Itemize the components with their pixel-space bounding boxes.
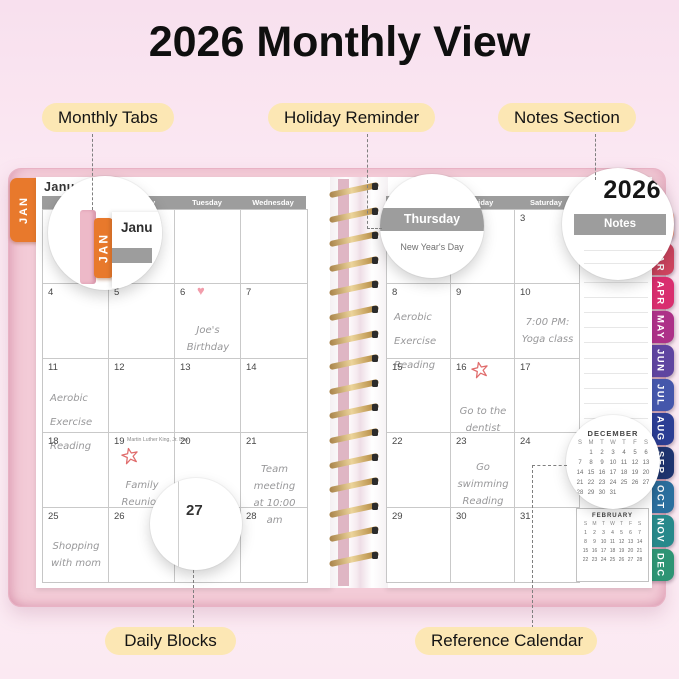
zoom-circle-daily-block: 27 [150, 478, 242, 570]
day-number: 28 [246, 511, 257, 522]
connector-holiday-h [367, 228, 382, 229]
mini-calendar-cell: 24 [608, 480, 619, 490]
zoom-notes-line [584, 263, 662, 264]
day-cell-21: 21Team meetingat 10:00 am [241, 433, 307, 507]
handwritten-entry: Go swimmingReading [454, 445, 512, 510]
zoom-day-number: 27 [186, 502, 203, 519]
mini-calendar-cell: 23 [597, 480, 608, 490]
day-number: 22 [392, 436, 403, 447]
mini-calendar-cell: 21 [575, 480, 586, 490]
mini-calendar-cell: 22 [586, 480, 597, 490]
spiral-hole [372, 355, 378, 362]
spiral-hole [372, 208, 378, 215]
mini-calendar-cell: 28 [575, 490, 586, 500]
day-number: 17 [520, 362, 531, 373]
mini-calendar-cell: S [575, 440, 586, 450]
spiral-hole [372, 454, 378, 461]
mini-calendar-cell: 25 [608, 557, 617, 566]
connector-notes [595, 134, 596, 180]
tab-jan: JAN [10, 178, 38, 242]
spiral-hole [372, 552, 378, 559]
mini-calendar-cell: 31 [608, 490, 619, 500]
mini-calendar-cell: 18 [619, 470, 630, 480]
mini-calendar-cell: 11 [608, 539, 617, 548]
zoom-circle-holiday: Thursday New Year's Day [380, 174, 484, 278]
day-cell-30: 30 [451, 508, 515, 582]
entry-line: Yoga class [518, 331, 577, 348]
day-cell-5: 5 [109, 284, 175, 358]
mini-calendar-cell: 17 [599, 548, 608, 557]
day-cell-11: 11Aerobic ExerciseReading [43, 359, 109, 433]
mini-calendar-cell [641, 490, 652, 500]
day-cell-15: 15 [387, 359, 451, 433]
spiral-hole [372, 281, 378, 288]
mini-calendar-cell: 5 [617, 530, 626, 539]
notes-line [584, 373, 648, 374]
year-label: 2026 [603, 176, 661, 205]
day-cell-6: 6♥Joe's Birthday [175, 284, 241, 358]
notes-line [584, 327, 648, 328]
mini-calendar-cell: 19 [617, 548, 626, 557]
mini-calendar-cell: 30 [597, 490, 608, 500]
day-cell-29: 29 [387, 508, 451, 582]
day-number: 15 [392, 362, 403, 373]
day-number: 26 [114, 511, 125, 522]
page-title: 2026 Monthly View [0, 18, 679, 67]
entry-line: 7:00 PM: [518, 314, 577, 331]
day-cell-10: 107:00 PM:Yoga class [515, 284, 579, 358]
zoom-month-snippet: Janu [121, 220, 153, 235]
day-cell-9: 9 [451, 284, 515, 358]
mini-calendar-headers: SMTWTFS [574, 440, 652, 450]
spiral-hole [372, 503, 378, 510]
mini-calendar-cell: 8 [581, 539, 590, 548]
connector-reference-v [532, 465, 533, 628]
entry-line: Joe's Birthday [178, 322, 238, 356]
mini-calendar-cell: W [608, 521, 617, 530]
mini-calendar-cell: 20 [641, 470, 652, 480]
mini-calendar-cell: 8 [586, 460, 597, 470]
mini-calendar-cell: 23 [590, 557, 599, 566]
notes-line [584, 342, 648, 343]
entry-line: Go swimming [454, 459, 512, 493]
connector-monthly-tabs [92, 134, 93, 210]
mini-calendar-cell: 12 [630, 460, 641, 470]
mini-calendar-cell: 10 [608, 460, 619, 470]
mini-calendar-cell: 26 [617, 557, 626, 566]
spiral-hole [372, 306, 378, 313]
entry-line: Aerobic Exercise [50, 387, 106, 435]
callout-holiday-reminder: Holiday Reminder [268, 103, 435, 132]
notes-line [584, 312, 648, 313]
callout-notes-section: Notes Section [498, 103, 636, 132]
mini-calendar-cell: 13 [626, 539, 635, 548]
day-number: 13 [180, 362, 191, 373]
day-cell [175, 210, 241, 284]
day-cell-13: 13 [175, 359, 241, 433]
mini-calendar-cell: 9 [590, 539, 599, 548]
mini-calendar-cell: 15 [581, 548, 590, 557]
handwritten-entry: 7:00 PM:Yoga class [518, 296, 577, 348]
mini-calendar-cell: 10 [599, 539, 608, 548]
reference-calendar-february: FEBRUARYSMTWTFS1234567891011121314151617… [576, 508, 649, 582]
zoom-circle-reference-calendar: DECEMBERSMTWTFS1234567891011121314151617… [566, 415, 660, 509]
mini-calendar-cell: M [586, 440, 597, 450]
callout-daily-blocks: Daily Blocks [105, 627, 236, 655]
mini-calendar-cell: 16 [597, 470, 608, 480]
mini-calendar-cell: 18 [608, 548, 617, 557]
zoom-jan-tab: JAN [94, 218, 113, 278]
mini-calendar-cell: S [641, 440, 652, 450]
spiral-hole [372, 232, 378, 239]
mini-calendar-cell: 19 [630, 470, 641, 480]
connector-reference-h [532, 465, 567, 466]
spiral-hole [372, 404, 378, 411]
entry-line: Shopping [46, 538, 106, 555]
mini-calendar-cell: 14 [635, 539, 644, 548]
callout-monthly-tabs: Monthly Tabs [42, 103, 174, 132]
handwritten-entry: Go to thedentist [454, 371, 512, 437]
day-number: 29 [392, 511, 403, 522]
notes-line [584, 297, 648, 298]
day-cell-12: 12 [109, 359, 175, 433]
mini-calendar-cell: 2 [597, 450, 608, 460]
day-cell-25: 25Shoppingwith mom [43, 508, 109, 582]
zoom-notes-header: Notes [574, 214, 666, 235]
planner-infographic: 2026 Monthly View Monthly Tabs Holiday R… [0, 0, 679, 679]
zoom-holiday-text: New Year's Day [380, 242, 484, 252]
mini-calendar-cell: T [597, 440, 608, 450]
day-cell-7: 7 [241, 284, 307, 358]
day-cell-16: 16Go to thedentist [451, 359, 515, 433]
mini-calendar-cell: 29 [586, 490, 597, 500]
mini-calendar-cell: 3 [608, 450, 619, 460]
mini-calendar-cell: 6 [626, 530, 635, 539]
mini-calendar-cell: 20 [626, 548, 635, 557]
mini-calendar-cell: 6 [641, 450, 652, 460]
connector-daily-blocks [193, 570, 194, 628]
day-number: 31 [520, 511, 531, 522]
mini-calendar-cell [575, 450, 586, 460]
mini-calendar-cell: T [619, 440, 630, 450]
mini-calendar-title: FEBRUARY [577, 509, 648, 521]
mini-calendar-cell: 4 [608, 530, 617, 539]
day-number: 3 [520, 213, 525, 224]
day-number: 14 [246, 362, 257, 373]
day-number: 12 [114, 362, 125, 373]
mini-calendar-cell: 27 [626, 557, 635, 566]
mini-calendar-headers: SMTWTFS [577, 521, 648, 530]
notes-line [584, 282, 648, 283]
entry-line: Aerobic Exercise [394, 306, 448, 354]
entry-line: Team meeting [244, 461, 305, 495]
mini-calendar-cell: T [599, 521, 608, 530]
notes-line [584, 403, 648, 404]
mini-calendar-cell: 9 [597, 460, 608, 470]
mini-calendar-cell: F [630, 440, 641, 450]
day-cell-31: 31 [515, 508, 579, 582]
day-cell-28: 28 [241, 508, 307, 582]
mini-calendar-cell: 26 [630, 480, 641, 490]
day-cell-14: 14 [241, 359, 307, 433]
day-number: 24 [520, 436, 531, 447]
zoom-page-corner: Janu [112, 212, 162, 288]
mini-calendar-cell: F [626, 521, 635, 530]
mini-calendar-cell: 7 [575, 460, 586, 470]
day-cell-23: 23Go swimmingReading [451, 433, 515, 507]
day-cell-4: 4 [43, 284, 109, 358]
mini-calendar-cell: 16 [590, 548, 599, 557]
day-cell-18: 18 [43, 433, 109, 507]
mini-calendar-cell: S [581, 521, 590, 530]
mini-calendar-cell [619, 490, 630, 500]
mini-calendar-cell: 7 [635, 530, 644, 539]
callout-reference-calendar: Reference Calendar [415, 627, 597, 655]
mini-calendar-cell: 25 [619, 480, 630, 490]
mini-calendar-cell: 1 [581, 530, 590, 539]
zoom-jan-tab-label: JAN [94, 218, 113, 278]
spiral-hole [372, 478, 378, 485]
mini-calendar-cell: S [635, 521, 644, 530]
mini-calendar-cell: 2 [590, 530, 599, 539]
day-number: 30 [456, 511, 467, 522]
day-cell-8: 8Aerobic ExerciseReading [387, 284, 451, 358]
mini-calendar-cell: 24 [599, 557, 608, 566]
entry-line: with mom [46, 555, 106, 572]
spiral-hole [372, 183, 378, 190]
mini-calendar-cell: 22 [581, 557, 590, 566]
mini-calendar-cell: W [608, 440, 619, 450]
mini-calendar-cell: 5 [630, 450, 641, 460]
spiral-hole [372, 380, 378, 387]
tab-jan-label: JAN [10, 178, 38, 242]
day-number: 4 [48, 287, 53, 298]
spiral-hole [372, 257, 378, 264]
mini-calendar-cell: 15 [586, 470, 597, 480]
day-number: 7 [246, 287, 251, 298]
mini-calendar-cell: 21 [635, 548, 644, 557]
mini-calendar-cell: M [590, 521, 599, 530]
mini-calendar-title: DECEMBER [574, 425, 652, 440]
weekday-tuesday: Tuesday [174, 196, 240, 209]
mini-calendar-cell: 13 [641, 460, 652, 470]
mini-calendar-cell: T [617, 521, 626, 530]
day-number: 18 [48, 436, 59, 447]
mini-calendar-cell: 3 [599, 530, 608, 539]
mini-calendar-cell: 28 [635, 557, 644, 566]
mini-calendar-cell: 27 [641, 480, 652, 490]
zoom-cell-border [178, 478, 179, 570]
connector-holiday-v [367, 134, 368, 229]
mini-calendar-cell: 12 [617, 539, 626, 548]
spiral-hole [372, 429, 378, 436]
zoom-circle-notes: 2026 Notes [562, 168, 674, 280]
handwritten-entry: Joe's Birthday [178, 296, 238, 356]
notes-line [584, 358, 648, 359]
day-number: 9 [456, 287, 461, 298]
mini-calendar-cell: 11 [619, 460, 630, 470]
day-cell [241, 210, 307, 284]
zoom-header-fragment [112, 248, 152, 263]
handwritten-entry: Shoppingwith mom [46, 520, 106, 572]
entry-line: Go to the [454, 403, 512, 420]
day-cell-17: 17 [515, 359, 579, 433]
zoom-notes-line [584, 250, 662, 251]
weekday-wednesday: Wednesday [240, 196, 306, 209]
spiral-hole [372, 331, 378, 338]
notes-line [584, 388, 648, 389]
day-cell-22: 22 [387, 433, 451, 507]
mini-calendar-cell: 4 [619, 450, 630, 460]
zoom-thursday-header: Thursday [380, 208, 484, 231]
spiral-hole [372, 527, 378, 534]
mini-calendar-cell: 1 [586, 450, 597, 460]
reference-calendar-december: DECEMBERSMTWTFS1234567891011121314151617… [574, 425, 652, 500]
day-number: 20 [180, 436, 191, 447]
mini-calendar-cell: 17 [608, 470, 619, 480]
zoom-circle-monthly-tab: JAN Janu [48, 176, 162, 290]
mini-calendar-cell: 14 [575, 470, 586, 480]
mini-calendar-cell [630, 490, 641, 500]
